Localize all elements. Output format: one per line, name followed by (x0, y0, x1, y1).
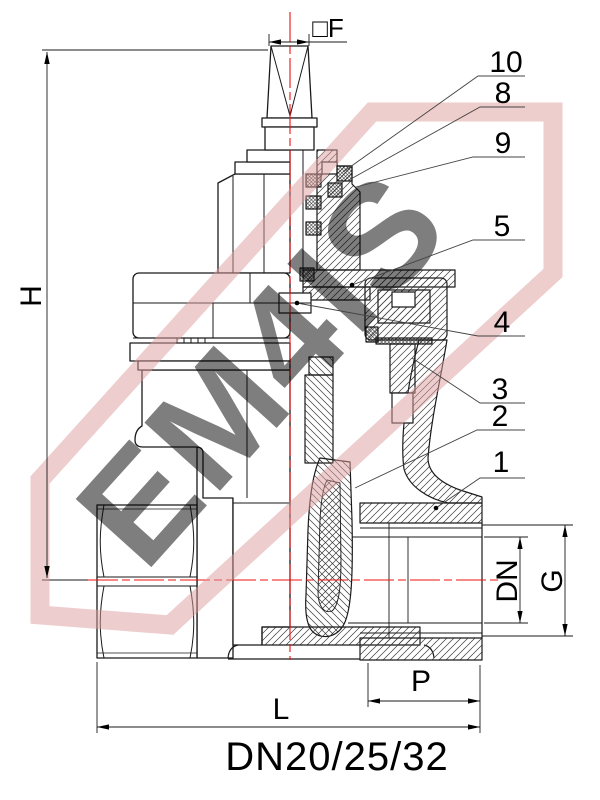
arrowhead (517, 537, 522, 549)
callout-9: 9 (495, 127, 512, 160)
callout-4: 4 (494, 306, 511, 339)
watermark: EM4IS (40, 112, 553, 625)
socket-bottom-wall (360, 638, 482, 660)
leader-dot (295, 301, 300, 306)
arrowhead (44, 52, 49, 64)
dim-label-thread: G (536, 569, 569, 592)
dim-label-port-depth: P (411, 665, 431, 698)
arrowhead (562, 525, 567, 537)
callout-5: 5 (494, 210, 511, 243)
callout-8: 8 (495, 77, 512, 110)
dim-label-height: H (15, 285, 48, 307)
arrowhead (368, 698, 380, 703)
gate-valve-section-drawing: EM4IS □F H L (0, 0, 600, 800)
dim-label-stem-square: □F (312, 13, 344, 43)
dim-label-length: L (273, 693, 290, 726)
bonnet-step (247, 150, 290, 162)
callout-2: 2 (492, 400, 509, 433)
dim-port-depth: P (368, 663, 480, 707)
leader-dot (350, 283, 355, 288)
arrowhead (517, 611, 522, 623)
leader-dot (434, 506, 439, 511)
arrowhead (562, 624, 567, 636)
arrowhead (97, 724, 109, 729)
arrowhead (297, 39, 309, 44)
arrowhead (468, 724, 480, 729)
callout-10: 10 (489, 46, 522, 79)
valve-technical-drawing-page: EM4IS □F H L (0, 0, 600, 800)
dim-stem-square: □F (42, 13, 347, 50)
socket-top-wall (360, 503, 482, 523)
callout-1: 1 (493, 446, 510, 479)
dim-label-bore: DN (491, 559, 524, 602)
bolt-shank (390, 344, 415, 393)
drawing-title: DN20/25/32 (225, 735, 448, 779)
wedge-core (318, 480, 341, 612)
arrowhead (468, 698, 480, 703)
dim-bore: DN (484, 537, 528, 623)
arrowhead (269, 39, 281, 44)
bonnet-step (235, 162, 290, 174)
